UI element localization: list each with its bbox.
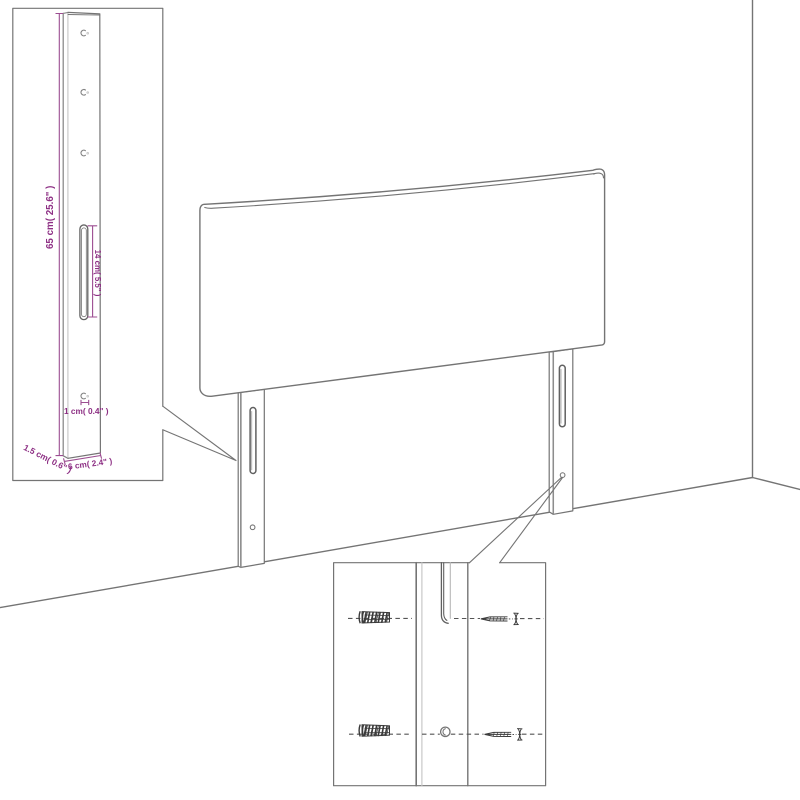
svg-text:14 cm( 5.5" ): 14 cm( 5.5" ) [93, 250, 102, 297]
svg-text:65 cm( 25.6" ): 65 cm( 25.6" ) [45, 186, 56, 249]
svg-text:1 cm( 0.4" ): 1 cm( 0.4" ) [64, 406, 109, 416]
svg-text:6 cm( 2.4" ): 6 cm( 2.4" ) [67, 456, 113, 472]
svg-text:1.5 cm( 0.6" ): 1.5 cm( 0.6" ) [22, 442, 74, 475]
